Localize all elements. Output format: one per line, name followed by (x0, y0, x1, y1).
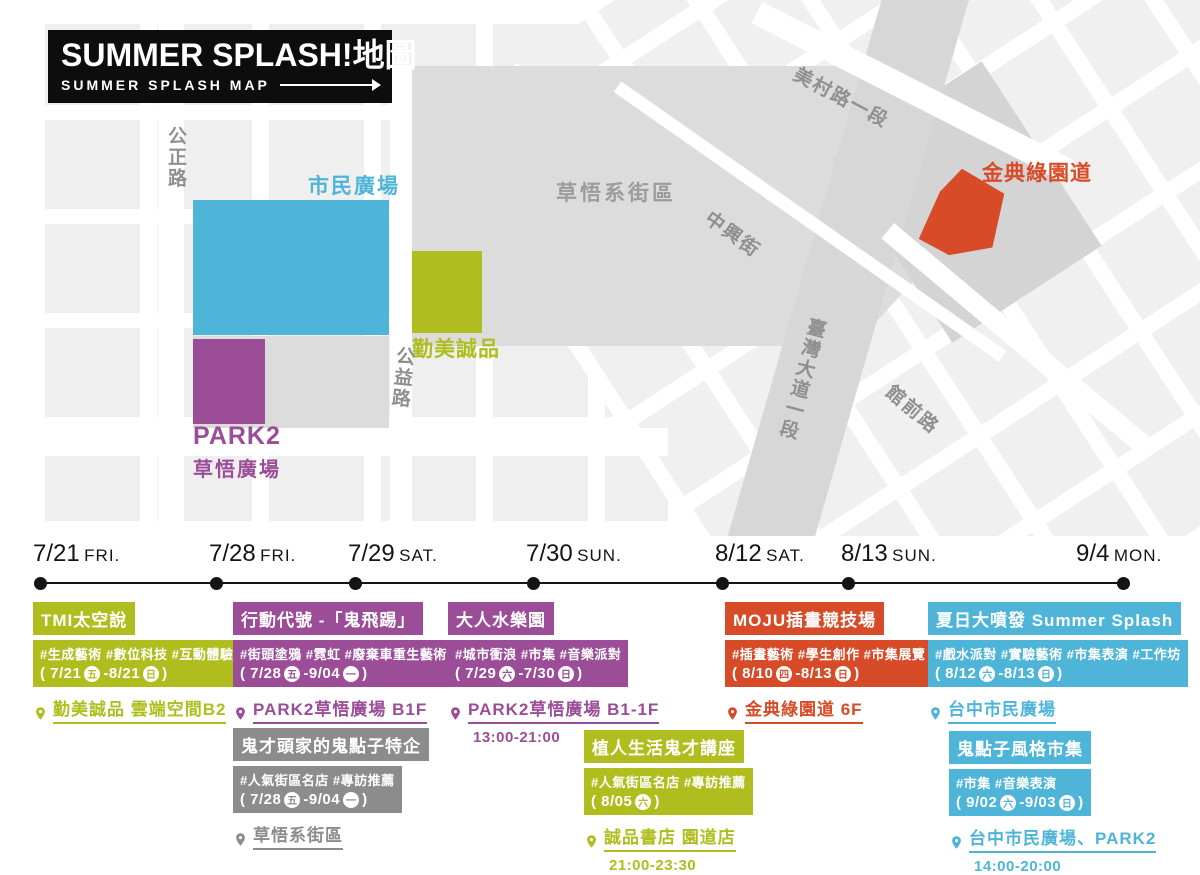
event-location-text: 台中市民廣場 (948, 695, 1056, 724)
event-hashtags: #插畫藝術 #學生創作 #市集展覽 (732, 644, 925, 663)
venue-label-park2-line2: 草悟廣場 (193, 453, 281, 482)
event-title: 夏日大噴發 Summer Splash (928, 602, 1181, 635)
district-label: 草悟系街區 (556, 177, 676, 207)
timeline-date: 8/12 SAT. (715, 540, 805, 568)
street (28, 428, 668, 456)
venue-civic-square (193, 200, 389, 335)
event-time: 21:00-23:30 (609, 857, 696, 874)
weekday-circle: 一 (343, 666, 359, 682)
venue-label-eslite: 勤美誠品 (412, 333, 500, 363)
event-location-link[interactable]: 草悟系街區 (233, 821, 343, 850)
date-weekday: SAT. (399, 546, 438, 565)
timeline-dot (34, 577, 47, 590)
timeline-date-label: 7/21 FRI. (33, 540, 120, 568)
date-weekday: SUN. (892, 546, 937, 565)
event-tags: #人氣街區名店 #專訪推薦 ( 8/05六) (584, 768, 753, 815)
timeline-date: 7/28 FRI. (209, 540, 296, 568)
event-title: 植人生活鬼才講座 (584, 730, 744, 763)
event-card: 大人水樂園 #城市衝浪 #市集 #音樂派對 ( 7/29六-7/30日) PAR… (448, 602, 659, 746)
date-number: 8/12 (715, 540, 762, 567)
event-title: MOJU插畫競技場 (725, 602, 884, 635)
event-location-text: 金典綠園道 6F (745, 695, 863, 724)
timeline-date-label: 7/30 SUN. (526, 540, 622, 568)
event-date-range: ( 7/21五-8/21日) (40, 665, 233, 682)
street-label-gongzheng-rd: 公正路 (162, 126, 189, 189)
timeline-date-label: 8/13 SUN. (841, 540, 937, 568)
event-time: 13:00-21:00 (473, 729, 560, 746)
timeline-dot (716, 577, 729, 590)
event-location-link[interactable]: 台中市民廣場 (928, 695, 1056, 724)
date-weekday: FRI. (260, 546, 296, 565)
date-number: 8/13 (841, 540, 888, 567)
timeline-dot (349, 577, 362, 590)
map-header: SUMMER SPLASH!地圖 SUMMER SPLASH MAP (48, 30, 392, 103)
event-date-range: ( 9/02六-9/03日) (956, 794, 1084, 811)
event-card: 鬼點子風格市集 #市集 #音樂表演 ( 9/02六-9/03日) 台中市民廣場、… (949, 731, 1156, 875)
venue-park2 (193, 339, 265, 424)
arrow-right-icon (280, 84, 379, 86)
timeline-date-label: 8/12 SAT. (715, 540, 805, 568)
event-location-text: 台中市民廣場、PARK2 (969, 824, 1156, 853)
page-title: SUMMER SPLASH!地圖 (61, 38, 379, 73)
event-time: 14:00-20:00 (974, 858, 1061, 875)
weekday-circle: 一 (343, 792, 359, 808)
date-number: 7/28 (209, 540, 256, 567)
event-location-text: 草悟系街區 (253, 821, 343, 850)
date-number: 7/30 (526, 540, 573, 567)
weekday-circle: 五 (284, 666, 300, 682)
location-pin-icon (33, 704, 48, 723)
event-card: 植人生活鬼才講座 #人氣街區名店 #專訪推薦 ( 8/05六) 誠品書店 園道店… (584, 730, 753, 874)
timeline-date: 9/4 MON. (1076, 540, 1162, 568)
event-location-text: 誠品書店 園道店 (604, 823, 736, 852)
street (390, 66, 412, 536)
weekday-circle: 六 (1000, 795, 1016, 811)
event-tags: #插畫藝術 #學生創作 #市集展覽 ( 8/10四-8/13日) (725, 640, 932, 687)
date-weekday: MON. (1114, 546, 1162, 565)
timeline-date-label: 7/28 FRI. (209, 540, 296, 568)
event-title: 鬼點子風格市集 (949, 731, 1091, 764)
weekday-circle: 六 (635, 794, 651, 810)
weekday-circle: 日 (835, 666, 851, 682)
event-hashtags: #人氣街區名店 #專訪推薦 (240, 770, 395, 789)
timeline-date: 7/21 FRI. (33, 540, 120, 568)
weekday-circle: 六 (499, 666, 515, 682)
location-pin-icon (949, 833, 964, 852)
event-title: 鬼才頭家的鬼點子特企 (233, 728, 429, 761)
event-date-range: ( 7/29六-7/30日) (455, 665, 621, 682)
event-location-link[interactable]: 台中市民廣場、PARK2 (949, 824, 1156, 853)
event-hashtags: #生成藝術 #數位科技 #互動體驗 (40, 644, 233, 663)
weekday-circle: 日 (1059, 795, 1075, 811)
date-number: 7/21 (33, 540, 80, 567)
event-tags: #生成藝術 #數位科技 #互動體驗 ( 7/21五-8/21日) (33, 640, 240, 687)
event-location-link[interactable]: PARK2草悟廣場 B1-1F (448, 695, 659, 724)
event-card: MOJU插畫競技場 #插畫藝術 #學生創作 #市集展覽 ( 8/10四-8/13… (725, 602, 932, 724)
event-map: 市民廣場 草悟系街區 勤美誠品 金典綠園道 PARK2 草悟廣場 公正路 公益路… (0, 0, 1200, 536)
weekday-circle: 日 (143, 666, 159, 682)
event-tags: #街頭塗鴉 #霓虹 #廢棄車重生藝術 ( 7/28五-9/04一) (233, 640, 454, 687)
date-weekday: SAT. (766, 546, 805, 565)
timeline-line (40, 582, 1123, 584)
location-pin-icon (233, 704, 248, 723)
event-hashtags: #市集 #音樂表演 (956, 773, 1084, 792)
timeline-date-label: 7/29 SAT. (348, 540, 438, 568)
timeline-dot (1117, 577, 1130, 590)
event-title: 行動代號 -「鬼飛踢」 (233, 602, 423, 635)
event-card: 行動代號 -「鬼飛踢」 #街頭塗鴉 #霓虹 #廢棄車重生藝術 ( 7/28五-9… (233, 602, 454, 724)
weekday-circle: 日 (558, 666, 574, 682)
timeline-dot (842, 577, 855, 590)
location-pin-icon (448, 704, 463, 723)
timeline-dot (527, 577, 540, 590)
event-location-link[interactable]: 勤美誠品 雲端空間B2 (33, 695, 226, 724)
event-card: 鬼才頭家的鬼點子特企 #人氣街區名店 #專訪推薦 ( 7/28五-9/04一) … (233, 728, 429, 850)
timeline: 7/21 FRI. 7/28 FRI. 7/29 SAT. 7/30 SUN. … (0, 540, 1200, 600)
event-hashtags: #城市衝浪 #市集 #音樂派對 (455, 644, 621, 663)
event-location-link[interactable]: 金典綠園道 6F (725, 695, 863, 724)
event-card: TMI太空說 #生成藝術 #數位科技 #互動體驗 ( 7/21五-8/21日) … (33, 602, 240, 724)
event-tags: #城市衝浪 #市集 #音樂派對 ( 7/29六-7/30日) (448, 640, 628, 687)
timeline-date: 8/13 SUN. (841, 540, 937, 568)
event-date-range: ( 8/10四-8/13日) (732, 665, 925, 682)
event-location-text: PARK2草悟廣場 B1-1F (468, 695, 659, 724)
timeline-dot (210, 577, 223, 590)
event-location-text: PARK2草悟廣場 B1F (253, 695, 427, 724)
event-date-range: ( 7/28五-9/04一) (240, 665, 447, 682)
timeline-date-label: 9/4 MON. (1076, 540, 1162, 568)
date-weekday: SUN. (577, 546, 622, 565)
location-pin-icon (928, 704, 943, 723)
event-location-link[interactable]: PARK2草悟廣場 B1F (233, 695, 427, 724)
event-card: 夏日大噴發 Summer Splash #戲水派對 #實驗藝術 #市集表演 #工… (928, 602, 1188, 746)
venue-label-civic-square: 市民廣場 (308, 170, 400, 200)
event-date-range: ( 7/28五-9/04一) (240, 791, 395, 808)
event-tags: #人氣街區名店 #專訪推薦 ( 7/28五-9/04一) (233, 766, 402, 813)
page-subtitle: SUMMER SPLASH MAP (61, 77, 270, 93)
event-hashtags: #戲水派對 #實驗藝術 #市集表演 #工作坊 (935, 644, 1181, 663)
weekday-circle: 六 (979, 666, 995, 682)
venue-label-park2-line1: PARK2 (193, 422, 281, 451)
location-pin-icon (233, 830, 248, 849)
weekday-circle: 日 (1038, 666, 1054, 682)
event-date-range: ( 8/12六-8/13日) (935, 665, 1181, 682)
weekday-circle: 四 (776, 666, 792, 682)
date-weekday: FRI. (84, 546, 120, 565)
venue-label-golden-greenway: 金典綠園道 (982, 157, 1092, 187)
location-pin-icon (584, 832, 599, 851)
weekday-circle: 五 (84, 666, 100, 682)
event-title: 大人水樂園 (448, 602, 554, 635)
event-location-text: 勤美誠品 雲端空間B2 (53, 695, 226, 724)
event-tags: #市集 #音樂表演 ( 9/02六-9/03日) (949, 769, 1091, 816)
timeline-date: 7/30 SUN. (526, 540, 622, 568)
date-number: 9/4 (1076, 540, 1109, 567)
weekday-circle: 五 (284, 792, 300, 808)
venue-eslite-park (412, 251, 482, 333)
event-title: TMI太空說 (33, 602, 135, 635)
date-number: 7/29 (348, 540, 395, 567)
event-hashtags: #街頭塗鴉 #霓虹 #廢棄車重生藝術 (240, 644, 447, 663)
venue-label-park2: PARK2 草悟廣場 (193, 422, 281, 482)
timeline-date: 7/29 SAT. (348, 540, 438, 568)
location-pin-icon (725, 704, 740, 723)
event-hashtags: #人氣街區名店 #專訪推薦 (591, 772, 746, 791)
event-tags: #戲水派對 #實驗藝術 #市集表演 #工作坊 ( 8/12六-8/13日) (928, 640, 1188, 687)
event-date-range: ( 8/05六) (591, 793, 746, 810)
event-location-link[interactable]: 誠品書店 園道店 (584, 823, 736, 852)
